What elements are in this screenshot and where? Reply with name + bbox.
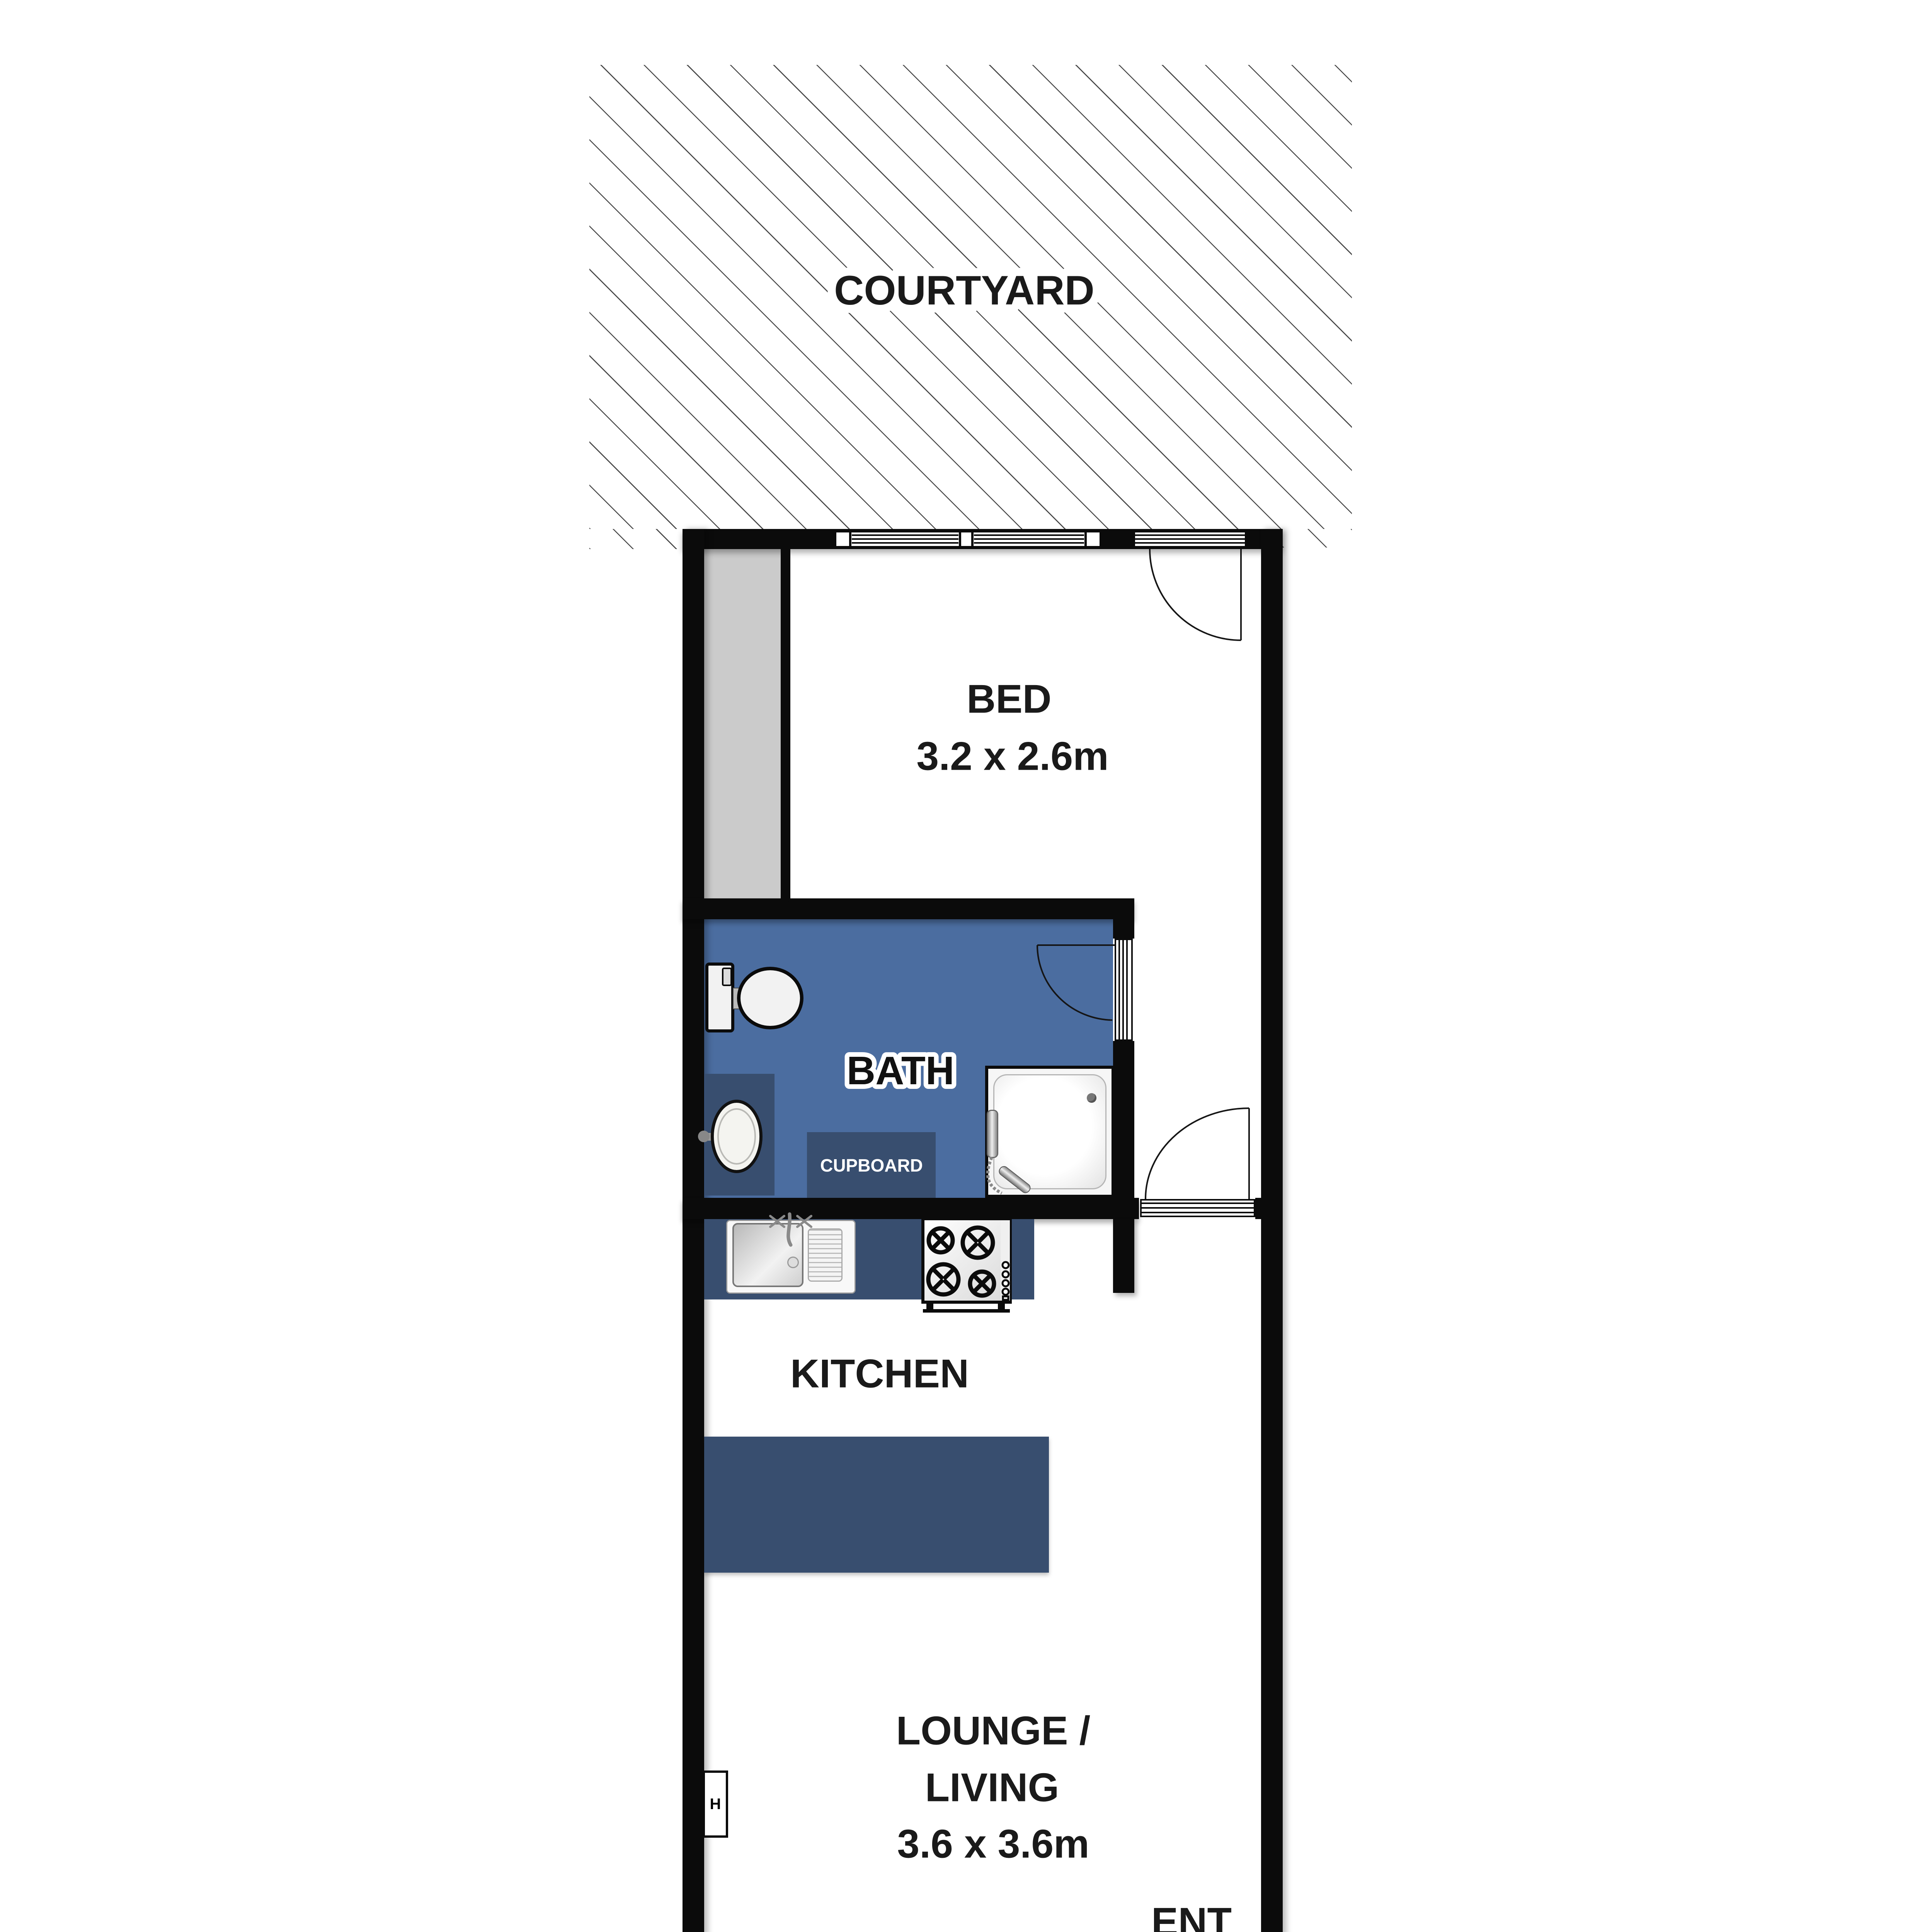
svg-text:COURTYARD: COURTYARD <box>834 267 1095 313</box>
svg-text:BATH: BATH <box>847 1048 954 1093</box>
